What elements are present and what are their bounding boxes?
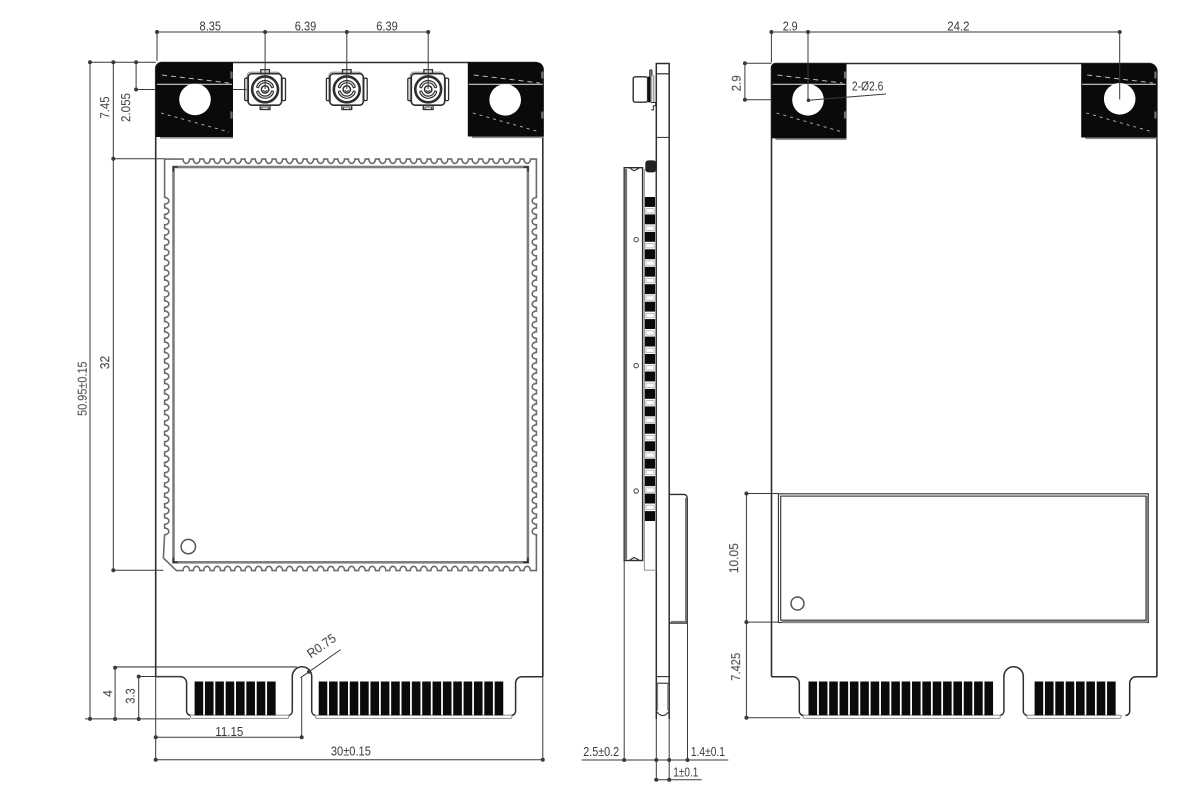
- svg-text:1±0.1: 1±0.1: [673, 765, 698, 780]
- svg-text:30±0.15: 30±0.15: [331, 743, 371, 758]
- svg-text:4: 4: [100, 690, 115, 697]
- svg-text:24.2: 24.2: [947, 18, 969, 33]
- svg-text:3.3: 3.3: [123, 688, 138, 704]
- svg-text:2.055: 2.055: [118, 93, 133, 122]
- svg-text:6.39: 6.39: [295, 19, 317, 34]
- svg-text:7.45: 7.45: [97, 97, 112, 119]
- svg-text:50.95±0.15: 50.95±0.15: [75, 361, 90, 416]
- svg-text:2.5±0.2: 2.5±0.2: [583, 744, 619, 759]
- svg-text:8.35: 8.35: [200, 19, 222, 34]
- svg-text:11.15: 11.15: [215, 724, 243, 739]
- svg-text:2.9: 2.9: [783, 18, 798, 33]
- svg-text:2-Ø2.6: 2-Ø2.6: [852, 79, 884, 94]
- svg-text:2.9: 2.9: [729, 75, 744, 91]
- svg-text:7.425: 7.425: [728, 653, 743, 681]
- svg-text:10.05: 10.05: [726, 543, 741, 573]
- svg-text:6.39: 6.39: [376, 19, 398, 34]
- svg-text:1.4±0.1: 1.4±0.1: [691, 744, 725, 759]
- svg-text:32: 32: [97, 356, 112, 370]
- svg-text:R0.75: R0.75: [304, 630, 339, 661]
